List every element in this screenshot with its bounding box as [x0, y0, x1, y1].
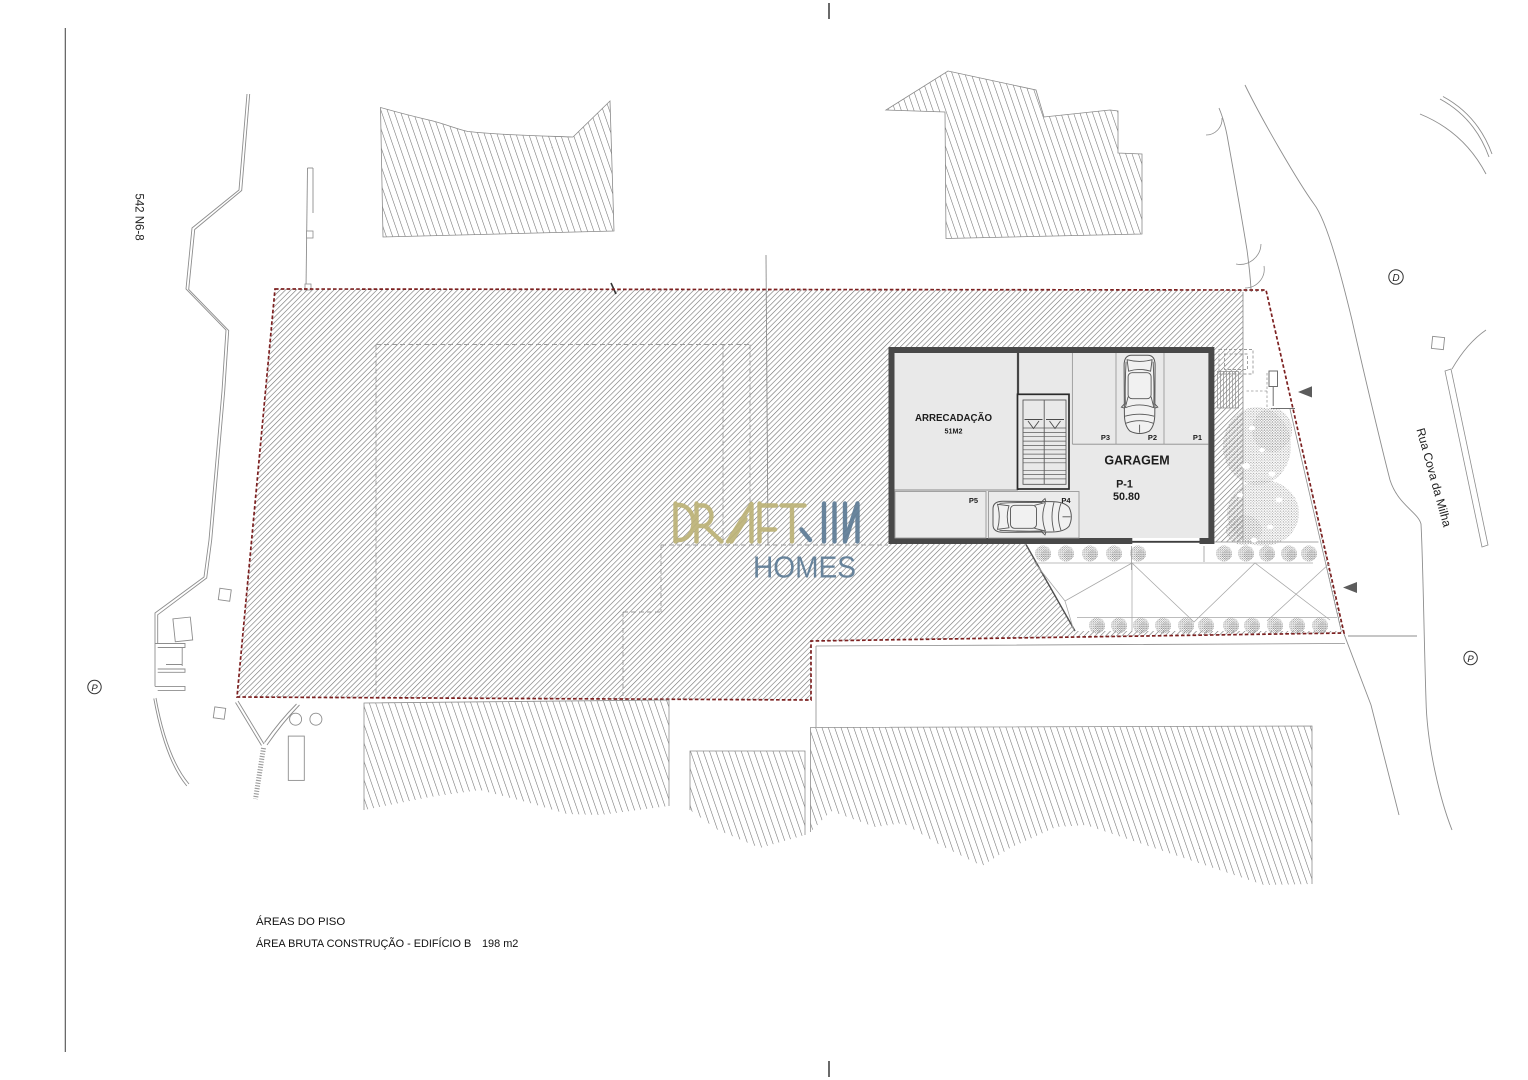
svg-text:P: P — [91, 683, 98, 694]
svg-text:GARAGEM: GARAGEM — [1104, 454, 1169, 468]
svg-text:HOMES: HOMES — [753, 551, 856, 585]
svg-text:ÁREA BRUTA CONSTRUÇÃO - EDIFÍC: ÁREA BRUTA CONSTRUÇÃO - EDIFÍCIO B — [256, 937, 471, 950]
svg-text:P2: P2 — [1148, 433, 1157, 442]
svg-text:51M2: 51M2 — [945, 427, 963, 436]
svg-text:ARRECADAÇÃO: ARRECADAÇÃO — [915, 413, 992, 424]
svg-text:D: D — [1392, 273, 1399, 284]
svg-text:P5: P5 — [969, 496, 978, 505]
svg-text:50.80: 50.80 — [1113, 491, 1140, 503]
svg-text:P1: P1 — [1193, 433, 1202, 442]
svg-text:198 m2: 198 m2 — [482, 938, 518, 950]
svg-text:P-1: P-1 — [1116, 479, 1133, 491]
svg-text:P3: P3 — [1101, 433, 1110, 442]
svg-text:ÁREAS DO PISO: ÁREAS DO PISO — [256, 915, 345, 928]
svg-text:P4: P4 — [1061, 496, 1071, 505]
svg-text:P: P — [1467, 654, 1474, 665]
svg-text:542 N6-8: 542 N6-8 — [133, 193, 145, 240]
